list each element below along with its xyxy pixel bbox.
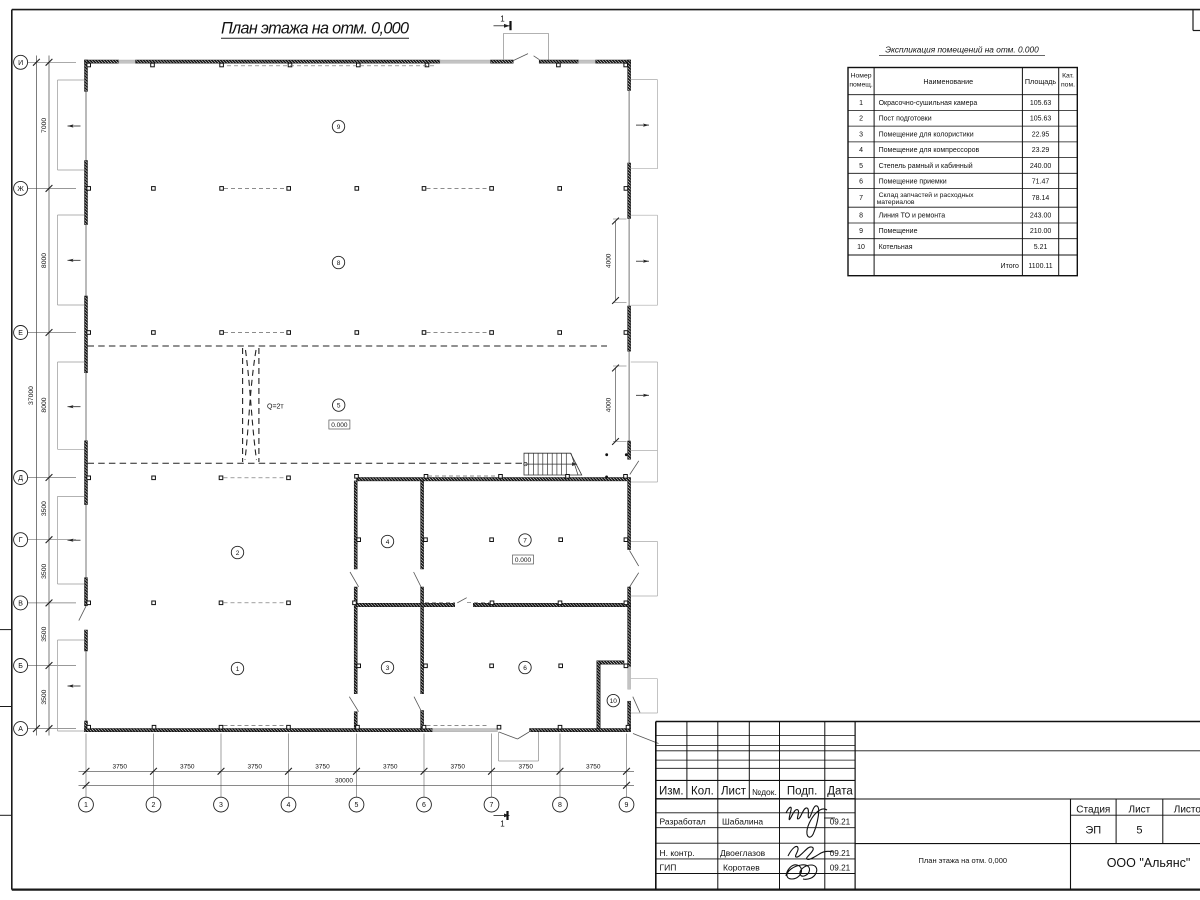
- svg-text:1: 1: [500, 15, 505, 24]
- svg-text:5.21: 5.21: [1034, 244, 1048, 251]
- svg-text:9: 9: [859, 228, 863, 235]
- svg-text:3750: 3750: [180, 763, 195, 770]
- svg-text:2: 2: [236, 550, 240, 557]
- svg-text:Изм.: Изм.: [659, 786, 684, 798]
- svg-text:Б: Б: [18, 663, 23, 670]
- svg-text:Пост подготовки: Пост подготовки: [879, 116, 932, 123]
- svg-text:1100.11: 1100.11: [1028, 263, 1052, 270]
- svg-text:Кол.: Кол.: [691, 786, 714, 798]
- svg-text:6: 6: [859, 178, 863, 185]
- svg-text:Ж: Ж: [17, 186, 24, 193]
- svg-text:8: 8: [558, 802, 562, 809]
- svg-text:ООО "Альянс": ООО "Альянс": [1107, 856, 1191, 870]
- svg-text:Е: Е: [18, 330, 23, 337]
- svg-text:материалов: материалов: [877, 199, 915, 206]
- svg-text:3750: 3750: [113, 763, 128, 770]
- svg-text:0.000: 0.000: [331, 422, 348, 429]
- svg-text:Дата: Дата: [827, 786, 853, 798]
- svg-text:8000: 8000: [41, 253, 48, 268]
- svg-text:9: 9: [337, 124, 341, 131]
- svg-text:Коротаев: Коротаев: [723, 863, 760, 873]
- svg-text:3750: 3750: [248, 763, 263, 770]
- svg-text:30000: 30000: [335, 777, 353, 784]
- svg-text:А: А: [18, 726, 23, 733]
- svg-text:Д: Д: [18, 475, 23, 482]
- svg-text:3: 3: [386, 665, 390, 672]
- svg-text:4: 4: [386, 539, 390, 546]
- svg-text:10: 10: [610, 698, 618, 705]
- svg-text:Двоеглазов: Двоеглазов: [720, 848, 766, 858]
- svg-text:3750: 3750: [315, 763, 330, 770]
- svg-text:2: 2: [152, 802, 156, 809]
- svg-text:09.21: 09.21: [830, 849, 851, 858]
- svg-text:5: 5: [337, 402, 341, 409]
- svg-text:Окрасочно-сушильная камера: Окрасочно-сушильная камера: [879, 100, 978, 107]
- svg-text:Наименование: Наименование: [923, 77, 973, 86]
- svg-text:№док.: №док.: [752, 787, 777, 797]
- svg-text:Лист: Лист: [721, 786, 747, 798]
- svg-text:3750: 3750: [586, 763, 601, 770]
- svg-text:37000: 37000: [28, 386, 35, 405]
- svg-text:105.63: 105.63: [1030, 116, 1052, 123]
- svg-text:4000: 4000: [606, 397, 613, 412]
- svg-text:240.00: 240.00: [1030, 163, 1052, 170]
- svg-text:71.47: 71.47: [1032, 178, 1050, 185]
- svg-text:243.00: 243.00: [1030, 213, 1052, 220]
- svg-text:3500: 3500: [41, 501, 48, 516]
- svg-text:План этажа на отм. 0,000: План этажа на отм. 0,000: [221, 20, 409, 38]
- svg-text:Площадь: Площадь: [1025, 77, 1057, 86]
- svg-text:Линия ТО и ремонта: Линия ТО и ремонта: [879, 213, 946, 220]
- svg-text:7: 7: [523, 537, 527, 544]
- svg-text:Помещение для колористики: Помещение для колористики: [879, 131, 974, 138]
- svg-text:3500: 3500: [41, 689, 48, 704]
- svg-text:5: 5: [355, 802, 359, 809]
- svg-text:09.21: 09.21: [830, 818, 851, 827]
- svg-text:Итого: Итого: [1001, 263, 1019, 270]
- svg-text:6: 6: [422, 802, 426, 809]
- svg-text:10: 10: [857, 244, 865, 251]
- svg-text:0.000: 0.000: [515, 557, 532, 564]
- svg-text:помещ.: помещ.: [849, 82, 873, 89]
- svg-text:Помещение для компрессоров: Помещение для компрессоров: [879, 147, 980, 154]
- svg-text:1: 1: [859, 100, 863, 107]
- svg-text:1: 1: [500, 820, 505, 829]
- svg-text:И: И: [18, 60, 23, 67]
- svg-text:Листов: Листов: [1174, 804, 1200, 815]
- svg-text:9: 9: [625, 802, 629, 809]
- svg-text:6: 6: [523, 665, 527, 672]
- svg-text:78.14: 78.14: [1032, 195, 1050, 202]
- svg-text:8000: 8000: [41, 397, 48, 412]
- svg-text:пом.: пом.: [1061, 82, 1075, 89]
- svg-text:Кат.: Кат.: [1062, 73, 1074, 80]
- svg-text:3500: 3500: [41, 626, 48, 641]
- svg-text:Помещение приемки: Помещение приемки: [879, 178, 947, 185]
- svg-text:2: 2: [859, 116, 863, 123]
- svg-text:Степель рамный и кабинный: Степель рамный и кабинный: [879, 162, 973, 170]
- svg-text:105.63: 105.63: [1030, 100, 1052, 107]
- svg-text:3750: 3750: [519, 763, 534, 770]
- svg-text:Q=2т: Q=2т: [267, 404, 284, 411]
- svg-text:Шабалина: Шабалина: [722, 817, 763, 827]
- svg-text:Г: Г: [19, 537, 23, 544]
- svg-text:09.21: 09.21: [830, 864, 851, 873]
- svg-text:8: 8: [337, 260, 341, 267]
- svg-text:1: 1: [236, 666, 240, 673]
- svg-text:Помещение: Помещение: [879, 228, 918, 235]
- svg-text:5: 5: [1136, 825, 1142, 837]
- svg-text:7: 7: [859, 195, 863, 202]
- svg-text:3500: 3500: [41, 564, 48, 579]
- svg-text:3: 3: [219, 802, 223, 809]
- svg-text:3: 3: [859, 131, 863, 138]
- svg-text:3750: 3750: [451, 763, 466, 770]
- svg-text:Стадия: Стадия: [1076, 804, 1110, 815]
- svg-text:В: В: [18, 600, 23, 607]
- svg-text:Разработал: Разработал: [660, 817, 706, 827]
- svg-text:План этажа на отм. 0,000: План этажа на отм. 0,000: [919, 856, 1008, 865]
- svg-text:ЭП: ЭП: [1085, 825, 1101, 837]
- svg-text:7: 7: [490, 802, 494, 809]
- svg-text:Склад запчастей и расходных: Склад запчастей и расходных: [879, 191, 975, 199]
- svg-text:3750: 3750: [383, 763, 398, 770]
- svg-text:8: 8: [859, 213, 863, 220]
- svg-text:ГИП: ГИП: [660, 863, 677, 873]
- svg-text:22.95: 22.95: [1032, 131, 1050, 138]
- svg-text:Н. контр.: Н. контр.: [660, 848, 695, 858]
- svg-text:4: 4: [287, 802, 291, 809]
- svg-text:23.29: 23.29: [1032, 147, 1050, 154]
- svg-text:Экспликация помещений на отм.: Экспликация помещений на отм. 0.000: [885, 45, 1039, 55]
- svg-text:Подп.: Подп.: [787, 786, 818, 798]
- svg-text:7000: 7000: [41, 118, 48, 133]
- svg-text:Котельная: Котельная: [879, 244, 913, 251]
- svg-text:4: 4: [859, 147, 863, 154]
- svg-text:210.00: 210.00: [1030, 228, 1052, 235]
- svg-text:1: 1: [84, 802, 88, 809]
- svg-text:5: 5: [859, 163, 863, 170]
- svg-text:4000: 4000: [606, 253, 613, 268]
- svg-text:Лист: Лист: [1129, 804, 1151, 815]
- svg-text:Номер: Номер: [851, 73, 872, 80]
